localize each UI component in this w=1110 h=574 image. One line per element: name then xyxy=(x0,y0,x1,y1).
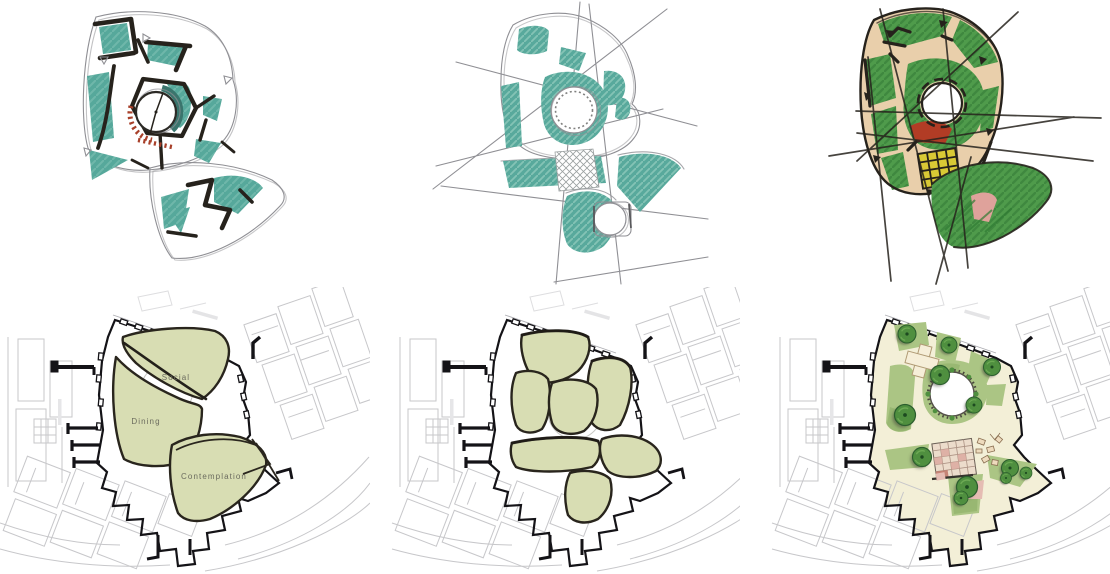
design-process-board: Social Dining Contemplation xyxy=(0,0,1110,574)
crosshatch-patch xyxy=(555,149,599,191)
panel-concept-sketch-3 xyxy=(740,0,1110,287)
plan-zone-blobs-drawing xyxy=(370,287,740,574)
zone-label-contemplation: Contemplation xyxy=(181,472,247,481)
concept-sketch-3-drawing xyxy=(740,0,1110,287)
panel-concept-sketch-1 xyxy=(0,0,370,287)
zone-blob xyxy=(512,371,551,432)
lower-circle xyxy=(594,202,632,238)
central-circle xyxy=(136,89,180,134)
central-circle xyxy=(551,87,601,136)
zone-blob xyxy=(511,437,600,471)
concept-sketch-2-drawing xyxy=(370,0,740,287)
zone-label-social: Social xyxy=(162,373,190,382)
panel-plan-labeled-zones: Social Dining Contemplation xyxy=(0,287,370,574)
teal-hatched-patches xyxy=(501,26,681,253)
zone-label-dining: Dining xyxy=(131,417,160,426)
zone-blob xyxy=(549,380,598,434)
zone-blob xyxy=(600,436,661,477)
zones xyxy=(511,331,661,523)
panel-concept-sketch-2 xyxy=(370,0,740,287)
plan-labeled-zones-drawing: Social Dining Contemplation xyxy=(0,287,370,574)
panel-plan-rendered xyxy=(740,287,1110,574)
plan-rendered-drawing xyxy=(740,287,1110,574)
panel-plan-zone-blobs xyxy=(370,287,740,574)
zone-blob xyxy=(565,471,611,522)
concept-sketch-1-drawing xyxy=(0,0,370,287)
